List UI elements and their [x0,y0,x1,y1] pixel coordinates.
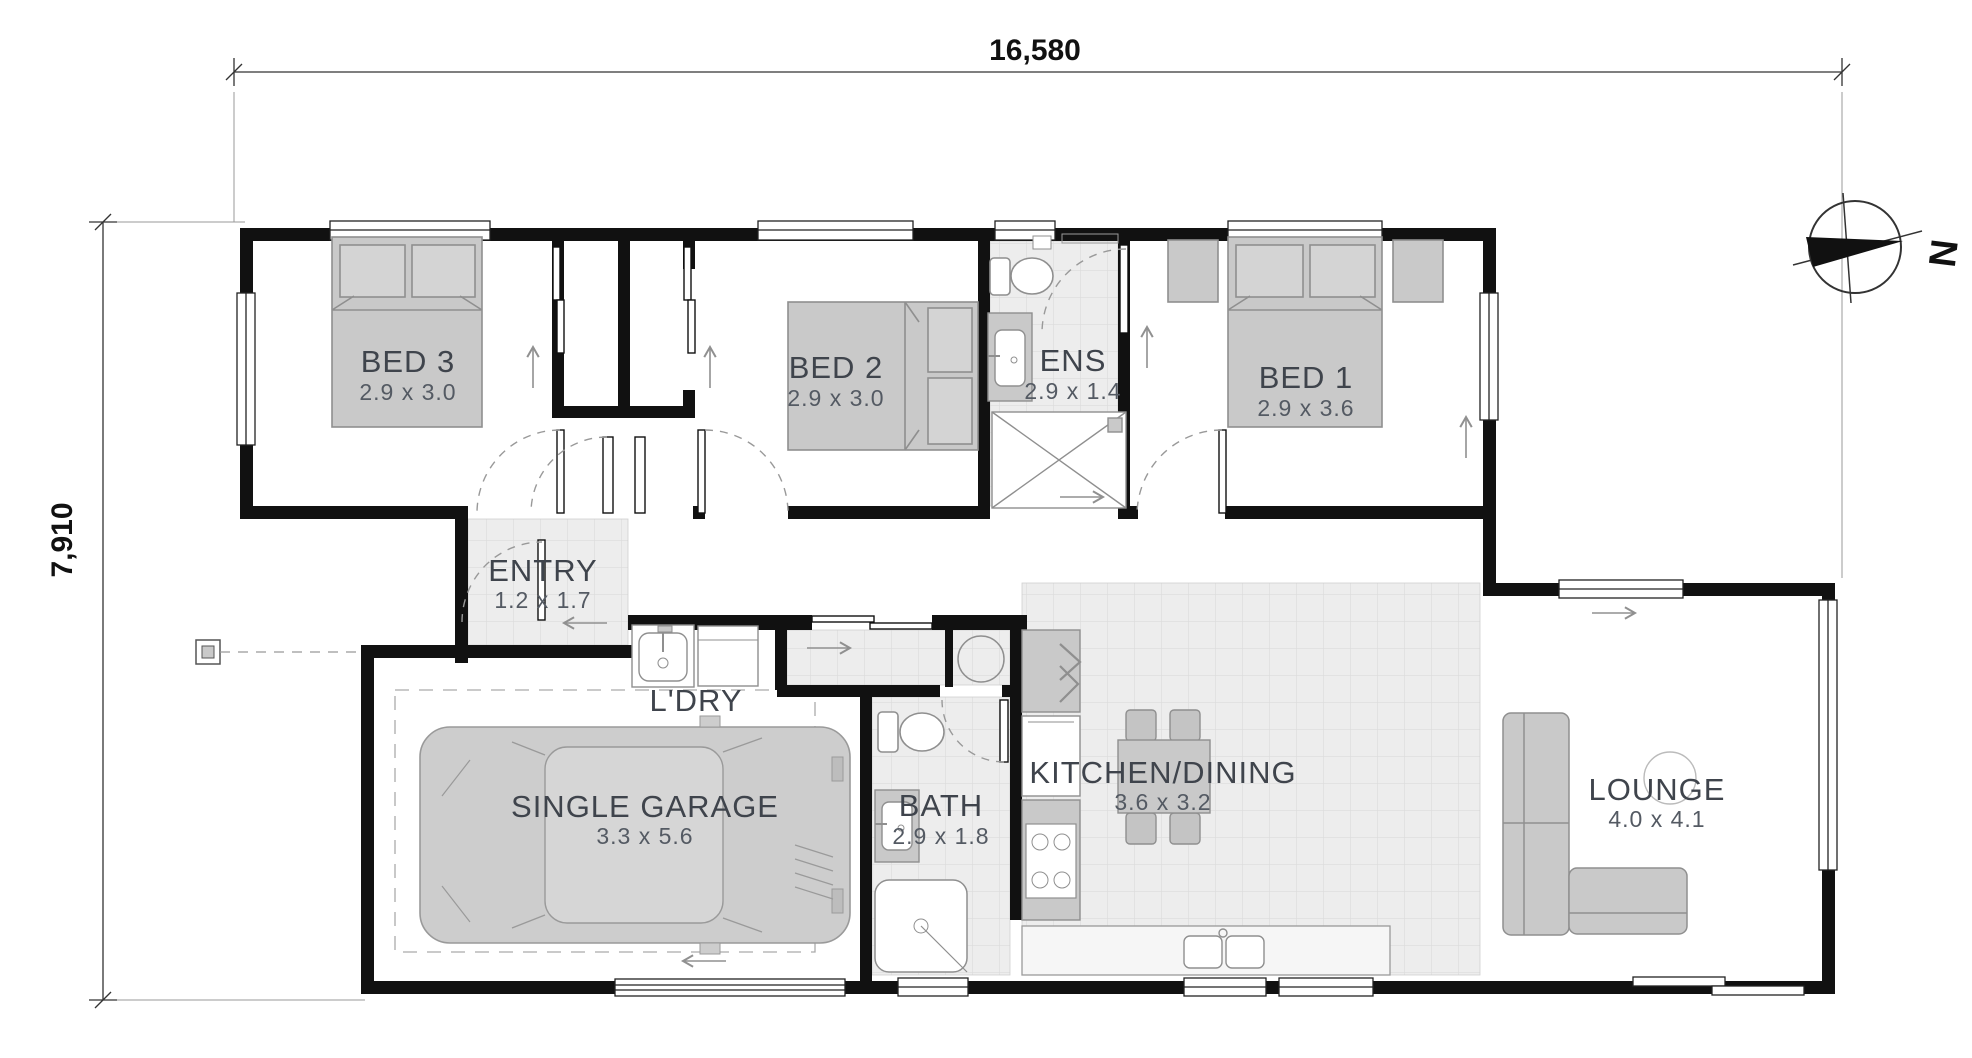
compass-n-letter: N [1920,237,1965,269]
svg-text:SINGLE GARAGE: SINGLE GARAGE [511,789,779,824]
hall-slider-panel-1 [812,616,874,622]
bed2-robe-slider-2 [688,300,695,353]
bed2-window [758,221,913,240]
svg-text:BED 2: BED 2 [789,350,884,385]
room-label-bed2: BED 2 2.9 x 3.0 [787,350,884,411]
room-label-bath: BATH 2.9 x 1.8 [892,788,989,849]
north-arrow [1806,237,1903,267]
svg-text:3.3 x 5.6: 3.3 x 5.6 [596,823,693,849]
svg-text:4.0 x 4.1: 4.0 x 4.1 [1608,806,1705,832]
lounge-north-window [1559,580,1683,598]
front-door-leaf-1 [603,437,613,513]
bed2-door-leaf [698,430,705,513]
svg-text:L'DRY: L'DRY [649,683,742,718]
letterbox [196,640,361,664]
room-label-ldry: L'DRY [649,683,742,718]
ens-toilet [990,258,1053,295]
svg-text:BATH: BATH [899,788,983,823]
hall-floor [787,630,1010,685]
svg-text:2.9 x 1.4: 2.9 x 1.4 [1024,378,1121,404]
bed1-door-swing [1137,430,1222,515]
bath-door-leaf [1000,700,1008,762]
bed3-side-window [237,293,255,445]
room-label-bed1: BED 1 2.9 x 3.6 [1257,360,1354,421]
svg-text:3.6 x 3.2: 3.6 x 3.2 [1114,789,1211,815]
bath-shower [875,880,967,972]
kitchen-window-2 [1279,978,1373,996]
floor-plan-page: 16,580 7,910 N [0,0,1972,1058]
svg-text:LOUNGE: LOUNGE [1589,772,1726,807]
bed3-robe-slider-2 [557,300,564,353]
bed2-robe-slider-1 [684,247,691,300]
bed3-door-swing [477,430,560,513]
washing-machine [698,626,758,686]
svg-text:BED 1: BED 1 [1259,360,1354,395]
garage-door [615,979,845,996]
svg-text:KITCHEN/DINING: KITCHEN/DINING [1029,755,1296,790]
overall-depth-dimension: 7,910 [46,502,79,577]
room-label-lounge: LOUNGE 4.0 x 4.1 [1589,772,1726,832]
north-compass: N [1793,193,1965,303]
svg-text:2.9 x 3.6: 2.9 x 3.6 [1257,395,1354,421]
bed1-side-window [1480,293,1498,420]
svg-text:2.9 x 3.0: 2.9 x 3.0 [787,385,884,411]
svg-text:2.9 x 1.8: 2.9 x 1.8 [892,823,989,849]
bed3-robe-slider-1 [553,247,560,300]
bed2-door-swing [705,430,788,513]
room-label-entry: ENTRY 1.2 x 1.7 [488,553,598,613]
room-label-bed3: BED 3 2.9 x 3.0 [359,344,456,405]
floor-plan-drawing: 16,580 7,910 N [0,0,1972,1058]
svg-text:2.9 x 3.0: 2.9 x 3.0 [359,379,456,405]
bed1-door-leaf [1219,430,1226,513]
ens-shower [992,412,1126,508]
cooktop [1026,824,1076,898]
front-door-swing [531,437,607,513]
svg-text:ENS: ENS [1040,343,1107,378]
ens-cistern [1033,236,1051,249]
svg-text:BED 3: BED 3 [361,344,456,379]
ens-door-leaf [1120,245,1128,333]
svg-text:1.2 x 1.7: 1.2 x 1.7 [494,587,591,613]
bath-toilet [878,712,944,752]
lounge-east-window [1819,600,1837,870]
laundry-tub [632,625,694,687]
overall-width-dimension: 16,580 [989,34,1081,67]
svg-text:ENTRY: ENTRY [488,553,598,588]
bath-window [898,978,968,996]
bed3-door-leaf [557,430,564,513]
kitchen-window-1 [1184,978,1266,996]
hall-slider-panel-2 [870,623,932,629]
front-door-leaf-2 [635,437,645,513]
